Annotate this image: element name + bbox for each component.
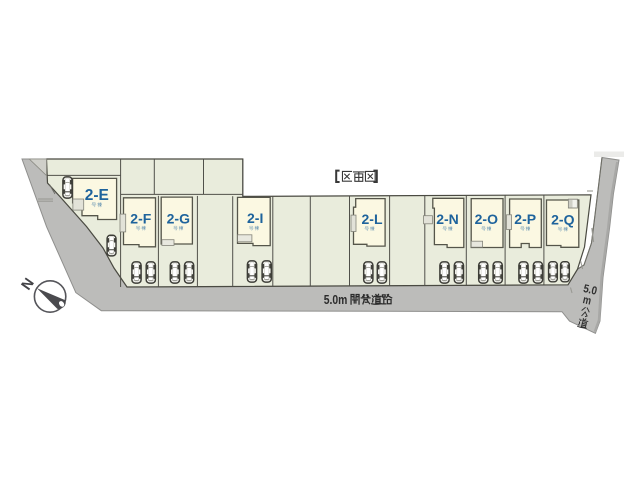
- svg-text:2-L: 2-L: [362, 211, 383, 227]
- svg-text:2-O: 2-O: [475, 211, 498, 227]
- svg-text:2-G: 2-G: [167, 211, 190, 227]
- svg-text:2-I: 2-I: [247, 210, 263, 226]
- svg-text:2-P: 2-P: [514, 211, 536, 227]
- svg-text:2-E: 2-E: [85, 187, 109, 204]
- svg-text:2-Q: 2-Q: [551, 212, 574, 228]
- svg-text:2-F: 2-F: [130, 211, 151, 227]
- svg-text:5.0m: 5.0m: [324, 292, 348, 307]
- svg-text:2-N: 2-N: [436, 211, 459, 227]
